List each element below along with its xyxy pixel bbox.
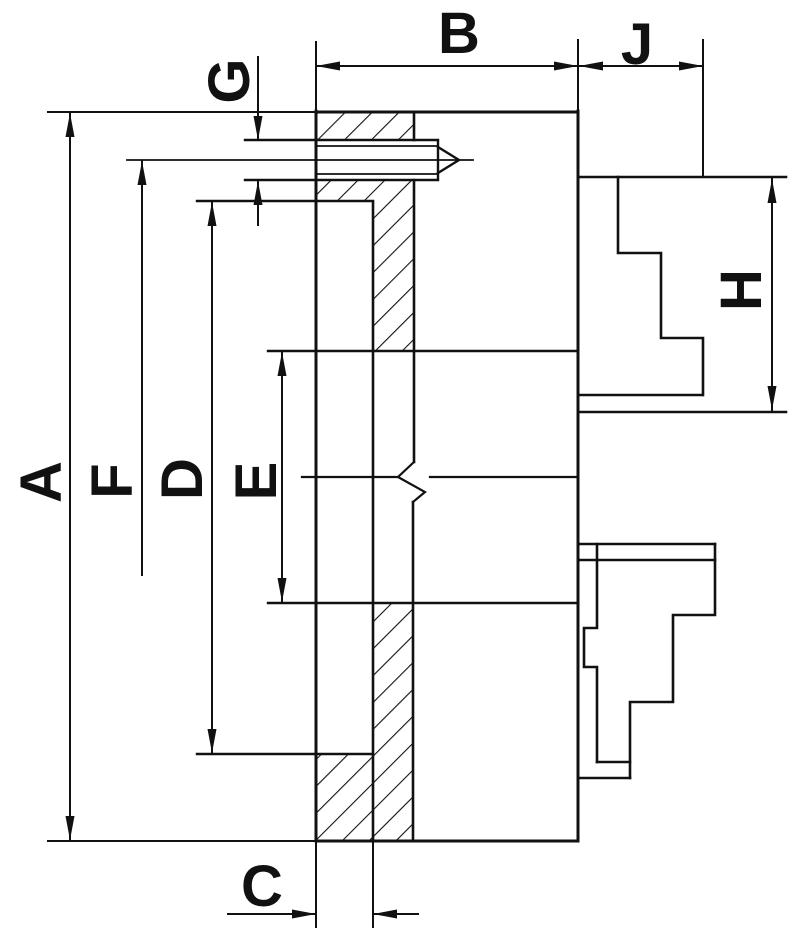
drawing-canvas: A B C D E F G H J: [0, 0, 800, 948]
dim-label-a: A: [9, 461, 74, 503]
bottom-jaw-profile: [579, 544, 715, 778]
dim-label-e: E: [224, 462, 289, 501]
mounting-bolt: [127, 140, 473, 180]
dim-label-d: D: [150, 458, 215, 500]
dim-label-g: G: [197, 58, 262, 103]
dim-label-f: F: [80, 463, 145, 498]
dim-label-h: H: [709, 269, 774, 311]
dim-label-b: B: [438, 1, 480, 66]
chuck-technical-drawing: A B C D E F G H J: [0, 0, 800, 948]
dim-label-c: C: [241, 854, 283, 919]
dim-label-j: J: [621, 12, 653, 77]
